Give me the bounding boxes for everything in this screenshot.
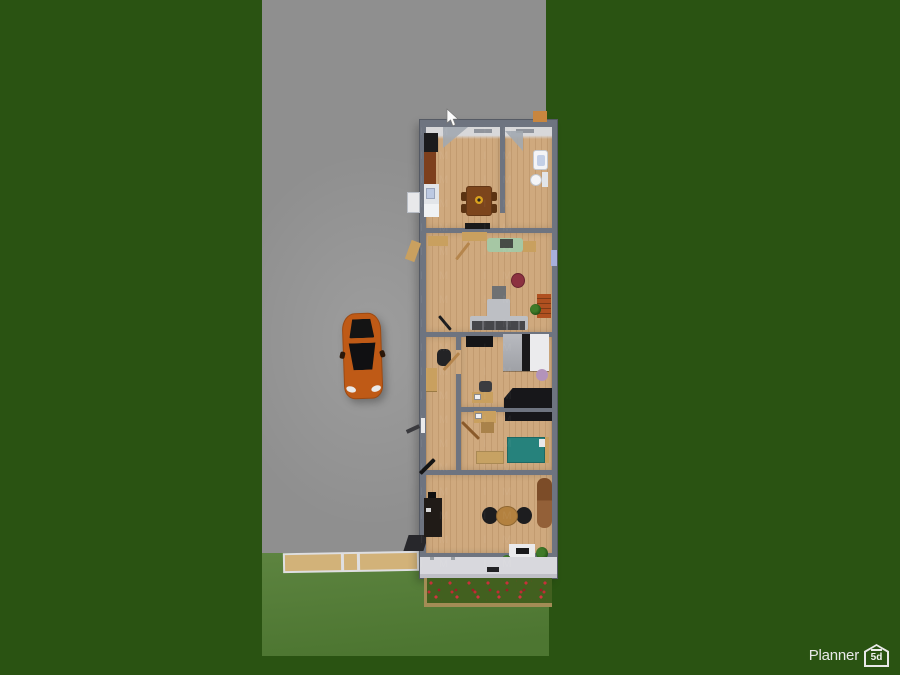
sideboard[interactable]	[462, 232, 487, 241]
fridge[interactable]	[424, 204, 439, 217]
flower-bed[interactable]	[424, 578, 552, 607]
walkway-slab	[285, 554, 341, 571]
laptop	[475, 413, 482, 419]
bathroom-sink[interactable]	[533, 150, 548, 170]
potted-plant[interactable]	[530, 304, 541, 315]
logo-wordmark: Planner	[809, 647, 859, 664]
black-wardrobe[interactable]	[504, 388, 552, 408]
walkway-slab	[360, 553, 417, 570]
console-table[interactable]	[509, 544, 535, 557]
walkway[interactable]	[283, 551, 419, 573]
desk-chair[interactable]	[479, 381, 492, 392]
gray-side-table[interactable]	[492, 286, 506, 300]
house	[420, 120, 557, 578]
car-headlight-left	[346, 385, 357, 394]
green-sofa[interactable]	[487, 238, 523, 252]
walkway-slab	[344, 554, 357, 570]
round-rug[interactable]	[536, 369, 548, 381]
kitchen-counter-sink[interactable]	[424, 184, 439, 204]
bed-pillow	[539, 439, 545, 447]
porch-pot	[430, 557, 434, 560]
kitchen-wall-appliance[interactable]	[465, 223, 490, 229]
floor-plan-scene: IM IM IM IM IM IM IM IM IM IM IM IM IM I…	[0, 0, 900, 675]
car-rear-window	[349, 319, 375, 339]
logo-awning-line	[871, 649, 882, 651]
car-mirror-left	[339, 351, 345, 359]
logo-house-inner: 5d	[866, 646, 887, 665]
stove[interactable]	[424, 133, 438, 152]
fruit-bowl[interactable]	[475, 196, 483, 204]
car-windshield	[348, 343, 378, 371]
runner-rug[interactable]	[537, 478, 552, 528]
office-chair[interactable]	[516, 507, 532, 524]
sideboard[interactable]	[523, 241, 536, 252]
planner5d-logo[interactable]: Planner 5d	[809, 644, 889, 667]
wall-tv[interactable]	[466, 336, 493, 347]
porch	[420, 557, 557, 578]
car-headlight-right	[370, 384, 381, 393]
toilet[interactable]	[530, 174, 542, 186]
bed-frame	[545, 437, 549, 463]
cabinet-item	[426, 508, 431, 512]
round-table[interactable]	[496, 506, 518, 526]
hall-cabinet[interactable]	[426, 368, 437, 392]
sink-basin	[426, 188, 435, 199]
console-object	[516, 548, 529, 554]
bed-mattress	[530, 334, 549, 371]
round-red-table[interactable]	[511, 273, 525, 288]
doormat	[487, 567, 499, 572]
orange-car[interactable]	[342, 312, 384, 399]
door-opening	[500, 213, 505, 228]
logo-house-icon: 5d	[864, 644, 889, 667]
bed-frame	[522, 334, 530, 371]
desk[interactable]	[472, 392, 493, 403]
entry-stoop[interactable]	[403, 535, 428, 551]
dark-cabinet[interactable]	[424, 498, 442, 537]
window[interactable]	[474, 129, 492, 133]
toilet-tank	[542, 172, 548, 187]
porch-pot	[451, 557, 455, 560]
window[interactable]	[551, 250, 557, 266]
sofa-table	[500, 239, 513, 248]
dresser[interactable]	[476, 451, 504, 464]
laptop	[474, 394, 481, 400]
double-bed[interactable]	[503, 334, 549, 371]
cabinet[interactable]	[481, 422, 494, 433]
kitchen-tall-cabinet[interactable]	[424, 152, 436, 184]
ac-unit[interactable]	[407, 192, 420, 213]
sink-basin	[537, 155, 545, 166]
sideboard[interactable]	[428, 236, 448, 246]
mouse-cursor-icon	[446, 108, 460, 128]
window[interactable]	[421, 418, 425, 433]
wall-shelf[interactable]	[505, 412, 552, 421]
logo-badge-text: 5d	[871, 652, 883, 663]
chimney[interactable]	[533, 111, 547, 122]
bed-sheet	[503, 334, 522, 371]
teal-bed[interactable]	[507, 437, 549, 463]
media-bench[interactable]	[472, 321, 525, 330]
